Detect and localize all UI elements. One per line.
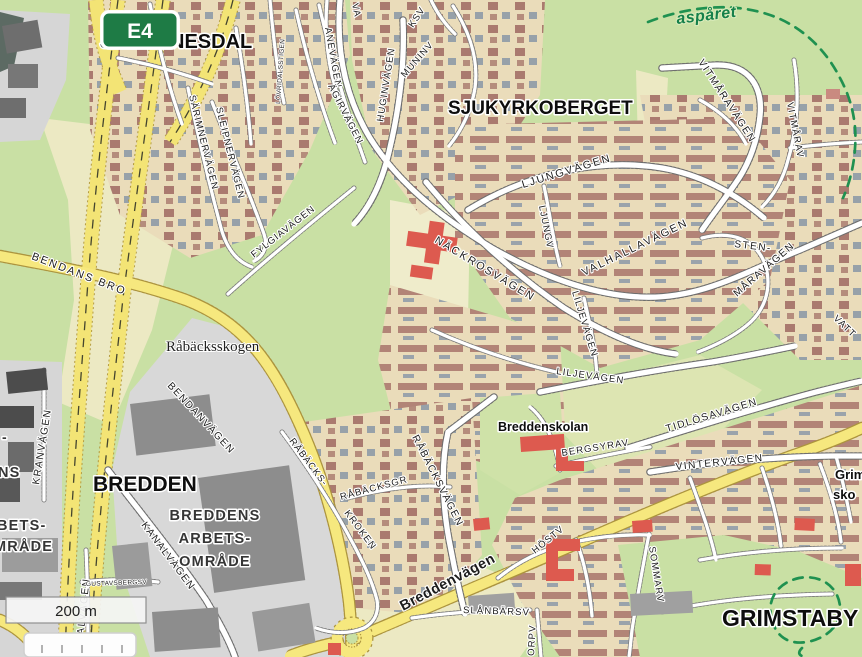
street-label-orpv-partial: ORPV [526, 624, 539, 656]
shield-label: E4 [127, 20, 153, 43]
map-canvas: ANEVÄGEN ÄGIRVÄGEN HUGINVÄGEN MUNINV KSV… [0, 0, 862, 657]
industrial-building-breddens [198, 465, 305, 593]
edge-label-mrade: MRÅDE [0, 538, 53, 555]
area-label-breddens-line2: ARBETS- [179, 531, 252, 547]
route-shield-e4: E4 [100, 10, 180, 50]
poi-label-grim-partial: Grim [835, 467, 862, 482]
scale-label: 200 m [55, 603, 97, 620]
area-label-bredden: BREDDEN [93, 473, 197, 496]
area-label-rabacksskogen: Råbäcksskogen [166, 339, 260, 355]
area-label-grimstaby: GRIMSTABY [722, 605, 858, 631]
edge-label-ns: NS [0, 465, 21, 481]
area-label-breddens-line3: OMRÅDE [179, 553, 251, 570]
poi-label-breddenskolan: Breddenskolan [498, 420, 588, 434]
edge-label-bets: BETS- [0, 518, 47, 534]
scale-bar: 200 m [6, 597, 146, 623]
street-label-slanbarsv: SLÅNBÄRSV [463, 605, 530, 618]
area-label-breddens-line1: BREDDENS [170, 508, 261, 524]
edge-label-dash: - [2, 429, 8, 445]
partial-ruler [24, 633, 136, 657]
area-label-sjukyrkoberget: SJUKYRKOBERGET [448, 98, 633, 119]
map-viewport[interactable]: ANEVÄGEN ÄGIRVÄGEN HUGINVÄGEN MUNINV KSV… [0, 0, 862, 657]
poi-label-sko-partial: sko [833, 487, 855, 502]
